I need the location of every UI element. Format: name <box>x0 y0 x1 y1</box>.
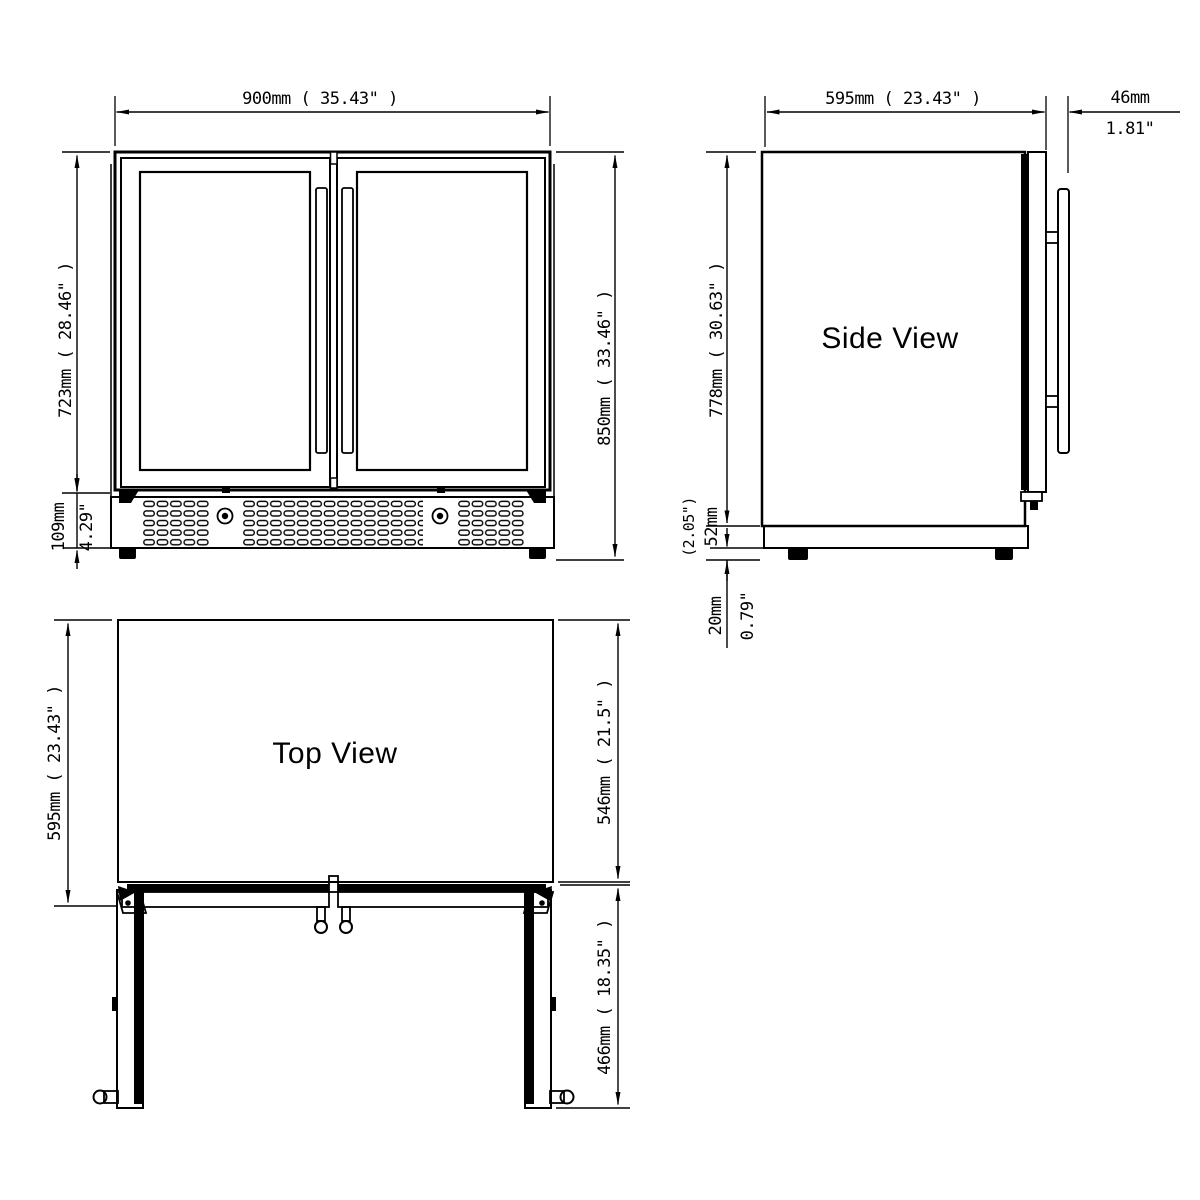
left-door-handle <box>316 188 327 453</box>
grille-slots-left <box>143 500 209 546</box>
center-divider <box>329 876 338 892</box>
closed-handle-stub-right <box>342 907 350 921</box>
grille-screw-right-center <box>437 513 443 519</box>
top-hinge-pin-right <box>539 900 545 906</box>
open-door-handle-right <box>561 1091 574 1104</box>
front-foot-left <box>119 548 136 559</box>
front-view: 900mm ( 35.43" ) <box>49 89 624 569</box>
closed-door-band-left <box>127 884 329 892</box>
right-door <box>337 158 545 487</box>
top-open-doors <box>94 890 574 1108</box>
open-door-face-right <box>526 890 534 1104</box>
side-feet-height-dimension: 20mm 0.79" <box>706 560 760 648</box>
side-depth-label: 595mm ( 23.43" ) <box>825 89 981 109</box>
side-body-height-label: 778mm ( 30.63" ) <box>707 262 727 418</box>
top-hinge-pin-left <box>125 900 131 906</box>
side-door-bottom <box>1021 492 1042 501</box>
side-handle-depth-mm-label: 46mm <box>1111 88 1150 108</box>
front-door-height-label: 723mm ( 28.46" ) <box>56 262 76 418</box>
top-depth-label: 595mm ( 23.43" ) <box>45 685 65 841</box>
dimension-drawing-canvas: 900mm ( 35.43" ) <box>0 0 1200 1200</box>
front-width-dimension: 900mm ( 35.43" ) <box>115 89 550 146</box>
side-handle-stub-bottom <box>1046 396 1058 407</box>
front-door-height-dimension: 723mm ( 28.46" ) <box>56 152 110 493</box>
open-door-face-left <box>134 890 142 1104</box>
top-body-depth-label: 546mm ( 21.5" ) <box>595 679 615 825</box>
open-door-stop-right <box>550 997 556 1011</box>
top-view-title: Top View <box>272 737 397 770</box>
closed-handle-end-left <box>315 921 327 933</box>
front-cabinet <box>111 152 554 548</box>
side-foot-rear <box>788 548 808 560</box>
side-plinth-height-mm-label: 52mm <box>702 507 722 546</box>
top-depth-dimension: 595mm ( 23.43" ) <box>45 620 118 906</box>
front-foot-right <box>529 548 546 559</box>
front-total-height-dimension: 850mm ( 33.46" ) <box>556 152 624 560</box>
side-door-hinge-pin <box>1030 501 1038 510</box>
side-door-gasket <box>1021 154 1028 490</box>
top-door-swing-dimension: 466mm ( 18.35" ) <box>556 885 630 1108</box>
side-plinth-height-in-label: (2.05") <box>680 497 698 557</box>
top-closed-doors <box>117 876 553 933</box>
side-body-height-dimension: 778mm ( 30.63" ) <box>706 152 760 526</box>
right-door-handle <box>342 188 353 453</box>
side-handle-depth-dimension: 46mm 1.81" <box>1068 88 1180 173</box>
side-foot-front <box>995 548 1013 560</box>
grille-slots-right <box>458 500 524 546</box>
door-frame-band-right <box>338 892 548 907</box>
door-bumper-left <box>222 488 230 493</box>
front-vent-height-in-label: 4.29" <box>77 503 97 552</box>
side-view: 595mm ( 23.43" ) 46mm 1.81" Side View 77… <box>680 88 1180 648</box>
closed-door-band-right <box>338 884 546 892</box>
side-door-panel <box>1028 152 1046 492</box>
side-feet-height-mm-label: 20mm <box>706 596 726 635</box>
front-total-height-label: 850mm ( 33.46" ) <box>595 290 615 446</box>
top-view: Top View <box>45 620 630 1108</box>
open-door-stop-left <box>112 997 118 1011</box>
right-door-glass <box>357 172 527 470</box>
center-mullion-top <box>331 152 338 164</box>
side-plinth <box>764 526 1028 548</box>
front-vent-grille <box>111 488 554 548</box>
front-vent-height-dimension: 109mm 4.29" <box>49 474 112 569</box>
technical-drawing-page: 900mm ( 35.43" ) <box>0 0 1200 1200</box>
left-door-glass <box>140 172 310 470</box>
side-view-title: Side View <box>821 322 958 355</box>
center-mullion-bottom <box>331 478 338 488</box>
door-frame-outline <box>115 152 550 490</box>
side-feet-height-in-label: 0.79" <box>738 592 758 641</box>
left-door <box>121 158 330 487</box>
front-vent-height-mm-label: 109mm <box>49 502 69 551</box>
closed-handle-end-right <box>340 921 352 933</box>
closed-handle-stub-left <box>317 907 325 921</box>
side-handle-depth-in-label: 1.81" <box>1106 119 1155 139</box>
top-door-swing-label: 466mm ( 18.35" ) <box>595 919 615 1075</box>
side-handle-bar <box>1058 189 1069 453</box>
door-frame-band-left <box>122 892 329 907</box>
side-handle-stub-top <box>1046 232 1058 243</box>
grille-slots-middle <box>243 500 423 546</box>
front-width-label: 900mm ( 35.43" ) <box>242 89 398 109</box>
top-body-depth-dimension: 546mm ( 21.5" ) <box>558 620 630 882</box>
door-bumper-right <box>437 488 445 493</box>
grille-screw-left-center <box>222 513 228 519</box>
side-depth-dimension: 595mm ( 23.43" ) <box>765 89 1046 150</box>
